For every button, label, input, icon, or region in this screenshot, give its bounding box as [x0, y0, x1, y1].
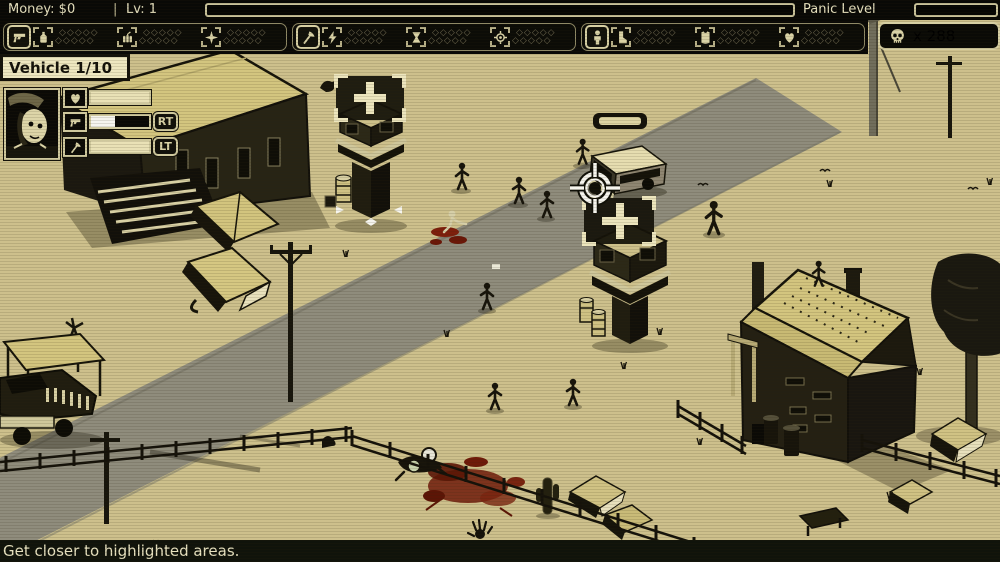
dynamite-icon — [121, 31, 134, 44]
target-icon — [494, 31, 507, 44]
heart-icon — [69, 92, 82, 105]
toolbar-group-survivor: ◇◇◇◇◇◇◇◇◇◇ ◇◇◇◇◇◇◇◇◇◇ ◇◇◇◇◇◇◇◇◇◇ — [581, 23, 865, 51]
objective-message: Get closer to highlighted areas. — [3, 542, 239, 560]
revolver-icon — [69, 116, 82, 129]
toolbar-item-target[interactable]: ◇◇◇◇◇◇◇◇◇◇ — [490, 27, 572, 47]
ammo-pips: ◇◇◇◇◇◇◇◇◇◇ — [512, 29, 556, 45]
vehicle-label: Vehicle 1/10 — [0, 54, 130, 81]
level-label: Lv: 1 — [126, 2, 157, 17]
armor-icon — [699, 31, 712, 44]
axe-icon — [69, 141, 82, 154]
survivor-portrait — [4, 88, 60, 160]
game-window: Money: $0 | Lv: 1 Panic Level ◇◇◇◇◇◇◇◇◇◇… — [0, 0, 1000, 562]
farmhouse — [728, 261, 952, 492]
health-bar-fill — [91, 92, 149, 103]
ranged-icon-box — [63, 112, 87, 132]
skull-icon — [889, 28, 906, 45]
molotov-icon — [37, 31, 50, 44]
weapon-toolbar: ◇◇◇◇◇◇◇◇◇◇ ◇◇◇◇◇◇◇◇◇◇ ◇◇◇◇◇◇◇◇◇◇ ◇◇◇◇◇◇◇… — [0, 20, 868, 54]
boot-icon — [615, 31, 628, 44]
panic-level-bar-right — [914, 3, 998, 17]
collapsed-tent-2 — [182, 248, 270, 312]
melee-bar-fill — [91, 141, 149, 152]
game-scene — [0, 0, 1000, 562]
zombie-counter: x 288 — [878, 22, 1000, 50]
fence-house-left — [678, 400, 746, 454]
panic-level-bar-left — [205, 3, 795, 17]
heart-icon — [783, 31, 796, 44]
rt-label: RT — [158, 115, 173, 128]
panic-level-label: Panic Level — [803, 2, 876, 17]
toolbar-item-hourglass[interactable]: ◇◇◇◇◇◇◇◇◇◇ — [406, 27, 488, 47]
ranged-weapon-bar — [89, 114, 151, 129]
revolver-icon — [12, 30, 27, 45]
rt-button-prompt: RT — [153, 112, 178, 131]
tree — [916, 253, 1000, 446]
slot-revolver[interactable] — [7, 25, 31, 49]
ammo-pips: ◇◇◇◇◇◇◇◇◇◇ — [428, 29, 472, 45]
lt-label: LT — [159, 140, 172, 153]
toolbar-item-boot[interactable]: ◇◇◇◇◇◇◇◇◇◇ — [611, 27, 693, 47]
ammo-pips: ◇◇◇◇◇◇◇◇◇◇ — [633, 29, 677, 45]
toolbar-item-armor[interactable]: ◇◇◇◇◇◇◇◇◇◇ — [695, 27, 777, 47]
slot-axe[interactable] — [296, 25, 320, 49]
health-bar — [89, 90, 151, 105]
top-status-bar: Money: $0 | Lv: 1 Panic Level — [0, 0, 1000, 20]
toolbar-item-molotov[interactable]: ◇◇◇◇◇◇◇◇◇◇ — [33, 27, 115, 47]
toolbar-item-heart[interactable]: ◇◇◇◇◇◇◇◇◇◇ — [779, 27, 861, 47]
survivor-icon — [590, 30, 605, 45]
lightning-icon — [326, 31, 339, 44]
toolbar-item-spike[interactable]: ◇◇◇◇◇◇◇◇◇◇ — [201, 27, 283, 47]
vehicle-label-text: Vehicle 1/10 — [9, 59, 112, 77]
health-icon-box — [63, 88, 87, 108]
ammo-pips: ◇◇◇◇◇◇◇◇◇◇ — [223, 29, 267, 45]
objective-message-bar: Get closer to highlighted areas. — [0, 540, 1000, 562]
axe-icon — [301, 30, 316, 45]
zombie-count: x 288 — [913, 27, 955, 45]
melee-weapon-bar — [89, 139, 151, 154]
solar-panel — [800, 508, 848, 536]
ammo-pips: ◇◇◇◇◇◇◇◇◇◇ — [139, 29, 183, 45]
ammo-pips: ◇◇◇◇◇◇◇◇◇◇ — [344, 29, 388, 45]
corpse-blood-pool — [396, 448, 525, 516]
ammo-pips: ◇◇◇◇◇◇◇◇◇◇ — [801, 29, 845, 45]
money-label: Money: $0 — [8, 2, 75, 17]
highlight-marker-1[interactable] — [336, 76, 404, 120]
severed-hand — [468, 520, 492, 539]
ammo-pips: ◇◇◇◇◇◇◇◇◇◇ — [717, 29, 761, 45]
van-health-bar — [593, 113, 647, 129]
toolbar-group-weapons: ◇◇◇◇◇◇◇◇◇◇ ◇◇◇◇◇◇◇◇◇◇ ◇◇◇◇◇◇◇◇◇◇ — [3, 23, 287, 51]
spike-icon — [205, 31, 218, 44]
telephone-pole-topright — [936, 56, 962, 138]
separator: | — [113, 2, 117, 17]
toolbar-item-lightning[interactable]: ◇◇◇◇◇◇◇◇◇◇ — [322, 27, 404, 47]
toolbar-item-dynamite[interactable]: ◇◇◇◇◇◇◇◇◇◇ — [117, 27, 199, 47]
portrait-art — [6, 90, 58, 158]
lt-button-prompt: LT — [153, 137, 178, 156]
ranged-bar-fill — [91, 116, 115, 127]
toolbar-group-tools: ◇◇◇◇◇◇◇◇◇◇ ◇◇◇◇◇◇◇◇◇◇ ◇◇◇◇◇◇◇◇◇◇ — [292, 23, 576, 51]
slot-survivor[interactable] — [585, 25, 609, 49]
ammo-pips: ◇◇◇◇◇◇◇◇◇◇ — [55, 29, 99, 45]
melee-icon-box — [63, 137, 87, 157]
hourglass-icon — [410, 31, 423, 44]
